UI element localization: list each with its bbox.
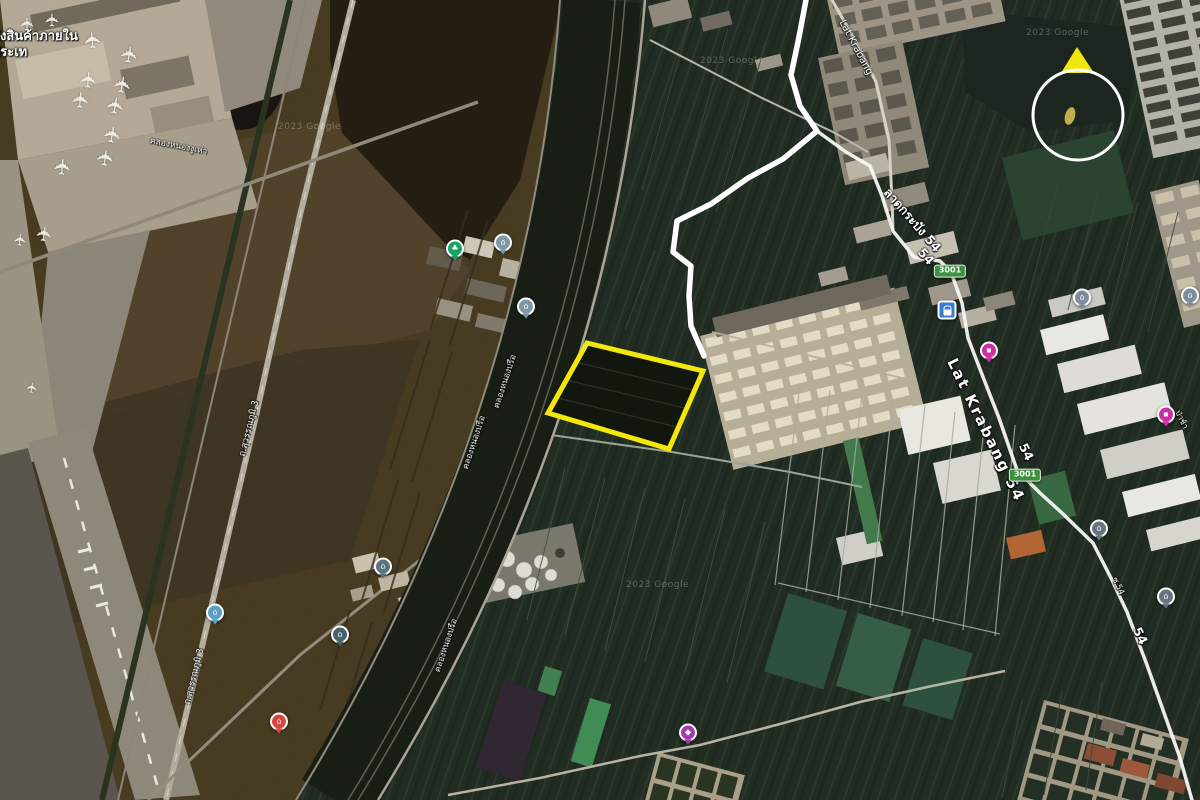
shopping-poi-pin-2[interactable]: ▪ bbox=[1157, 406, 1175, 424]
government-building-poi-pin[interactable]: ⌂ bbox=[206, 604, 224, 622]
building-poi-pin-8[interactable]: ⌂ bbox=[1181, 287, 1199, 305]
canal-label-c: คลองหนองปรือ bbox=[434, 618, 459, 674]
lock-icon-body bbox=[943, 309, 951, 315]
airplane-3: ✈ bbox=[119, 44, 144, 66]
route-shield-3001-b: 3001 bbox=[1009, 469, 1041, 482]
road-label-lat-krabang54-thai: ลาดกระบัง 54 bbox=[881, 186, 943, 254]
canal-label-b: คลองหนองปรือ bbox=[462, 415, 487, 471]
imagery-watermark-3: 2023 Google bbox=[626, 580, 689, 590]
airplane-12: ✈ bbox=[12, 233, 29, 248]
cemetery-label: ป่าช้า bbox=[1173, 409, 1189, 430]
building-poi-pin-4[interactable]: ⌂ bbox=[331, 626, 349, 644]
airplane-2: ✈ bbox=[82, 30, 106, 50]
road-label-lat-krabang54: Lat Krabang 54 bbox=[944, 356, 1027, 504]
airplane-8: ✈ bbox=[102, 124, 127, 146]
airplane-10: ✈ bbox=[52, 157, 76, 177]
airplane-13: ✈ bbox=[25, 381, 41, 395]
road-label-54-c: 54 bbox=[1130, 626, 1149, 647]
park-poi-pin[interactable]: ♣ bbox=[446, 240, 464, 258]
airplane-11: ✈ bbox=[33, 224, 55, 243]
imagery-watermark-1: 2023 Google bbox=[700, 56, 763, 66]
secure-facility-poi[interactable] bbox=[938, 301, 957, 320]
imagery-watermark-2: 2023 Google bbox=[1026, 28, 1089, 38]
airplane-5: ✈ bbox=[112, 74, 137, 96]
building-poi-pin-3[interactable]: ⌂ bbox=[374, 558, 392, 576]
building-poi-pin-1[interactable]: ⌂ bbox=[494, 234, 512, 252]
warehouse-label-line2: ประเท bbox=[0, 46, 27, 59]
building-poi-pin-7[interactable]: ⌂ bbox=[1157, 588, 1175, 606]
map-annotation-overlay: ลังสินค้าภายในประเทคลองหนองงูเห่าถ.สุวรร… bbox=[0, 0, 1200, 800]
canal-label-a: คลองหนองปรือ bbox=[493, 354, 518, 410]
shopping-poi-pin-1[interactable]: ▪ bbox=[980, 342, 998, 360]
route-shield-3001-a: 3001 bbox=[934, 265, 966, 278]
airplane-9: ✈ bbox=[95, 147, 119, 168]
attraction-poi-pin[interactable]: ◆ bbox=[679, 724, 697, 742]
airplane-0: ✈ bbox=[20, 16, 38, 31]
airplane-1: ✈ bbox=[45, 12, 63, 27]
road-label-lat-krabang: Lat Krabang bbox=[837, 19, 874, 77]
imagery-watermark-0: 2023 Google bbox=[278, 122, 341, 132]
road-label-54-b: 54 bbox=[1016, 442, 1035, 463]
road-label-soi54: ซ.54 bbox=[1110, 576, 1125, 596]
red-building-poi-pin[interactable]: ⌂ bbox=[270, 713, 288, 731]
airplane-4: ✈ bbox=[78, 70, 102, 90]
building-poi-pin-5[interactable]: ⌂ bbox=[1073, 289, 1091, 307]
road-label-suvarnabhumi3-a: ถ.สุวรรณภูมิ 3 bbox=[239, 400, 262, 458]
warehouse-label-line1: ลังสินค้าภายใน bbox=[0, 30, 78, 43]
airplane-7: ✈ bbox=[105, 95, 130, 117]
satellite-map-view[interactable]: ลังสินค้าภายในประเทคลองหนองงูเห่าถ.สุวรร… bbox=[0, 0, 1200, 800]
airplane-6: ✈ bbox=[70, 90, 94, 110]
canal-label-nong-ngu-hao: คลองหนองงูเห่า bbox=[149, 137, 208, 156]
building-poi-pin-2[interactable]: ⌂ bbox=[517, 298, 535, 316]
road-label-suvarnabhumi3-b: ถ.สุวรรณภูมิ 3 bbox=[184, 648, 207, 706]
building-poi-pin-6[interactable]: ⌂ bbox=[1090, 520, 1108, 538]
